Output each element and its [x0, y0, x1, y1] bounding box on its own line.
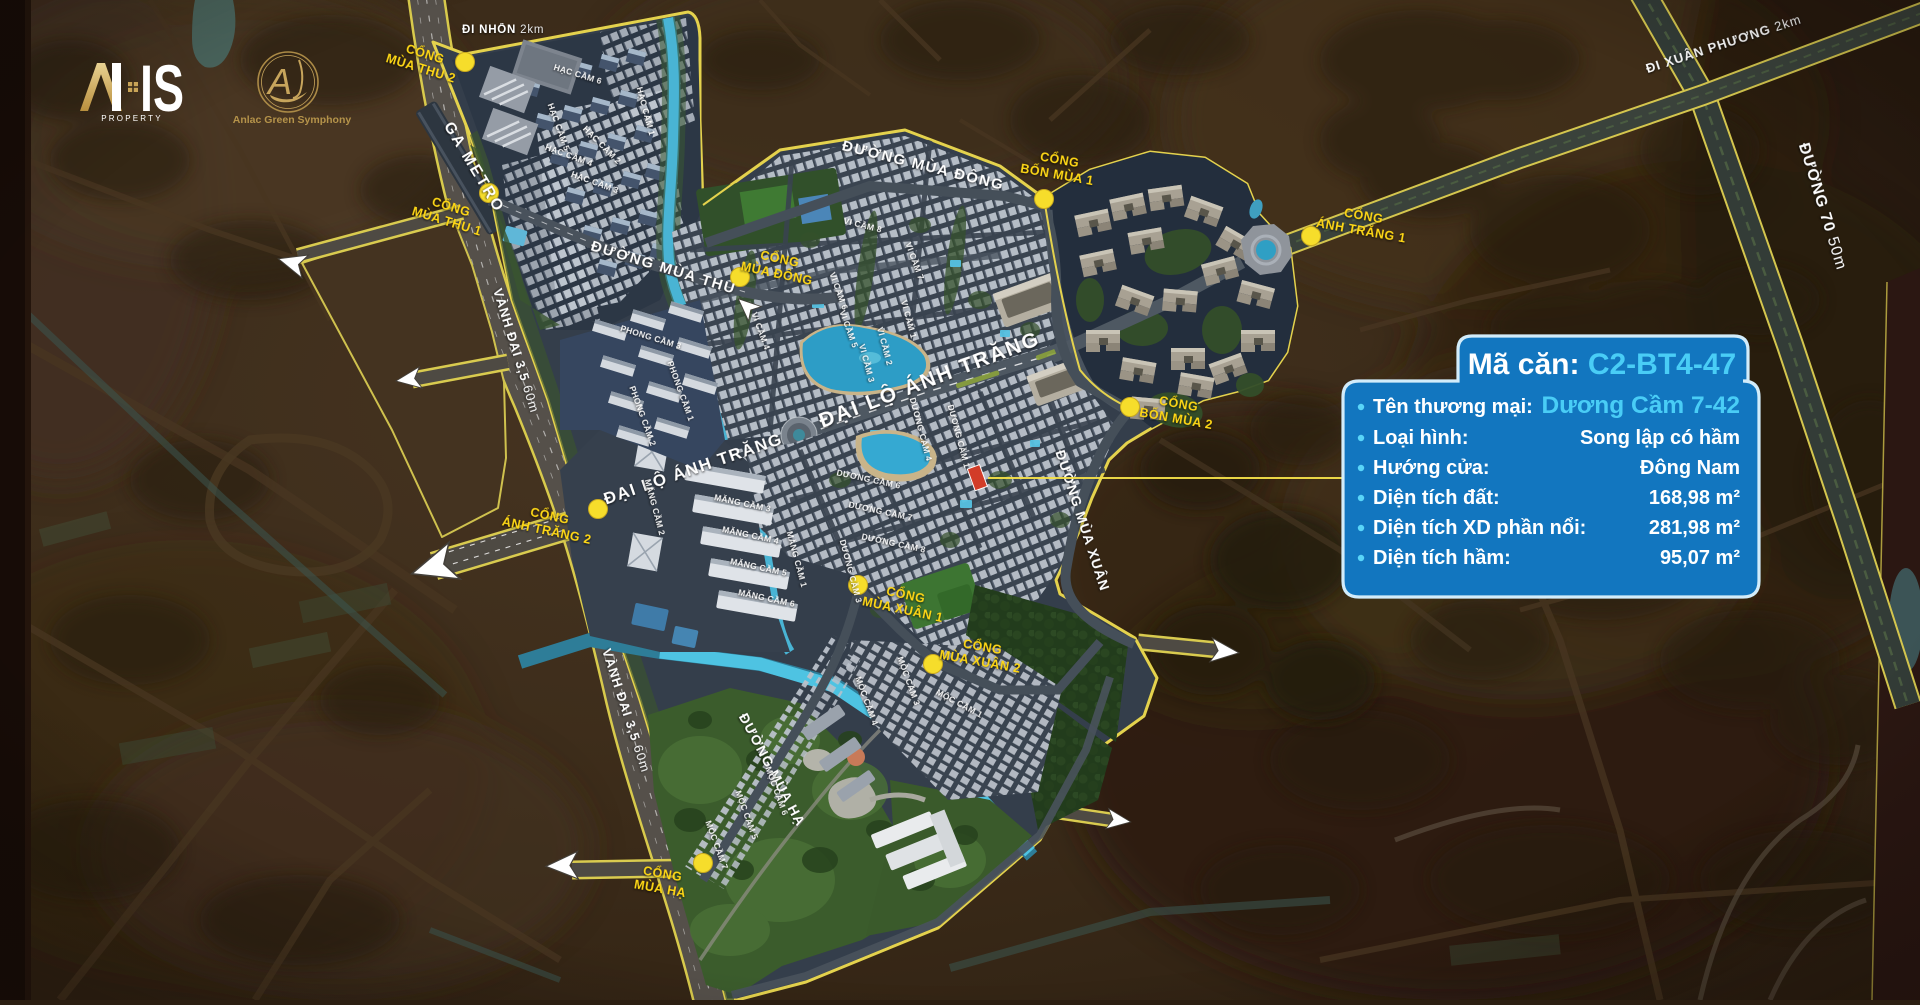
svg-text:Mã căn: C2-BT4-47: Mã căn: C2-BT4-47: [1468, 348, 1736, 381]
svg-text:A: A: [266, 61, 292, 102]
svg-text:Song lập có hầm: Song lập có hầm: [1580, 427, 1740, 449]
svg-text:Diện tích XD phần nổi:: Diện tích XD phần nổi:: [1373, 517, 1586, 539]
svg-text:95,07 m²: 95,07 m²: [1660, 547, 1740, 569]
svg-text:281,98 m²: 281,98 m²: [1649, 517, 1741, 539]
svg-text:Anlac Green Symphony: Anlac Green Symphony: [233, 114, 352, 126]
svg-text:Diện tích đất:: Diện tích đất:: [1373, 487, 1500, 509]
svg-text:PROPERTY: PROPERTY: [101, 114, 162, 123]
svg-text:Hướng cửa:: Hướng cửa:: [1373, 457, 1490, 479]
svg-text:Dương Cầm 7-42: Dương Cầm 7-42: [1541, 392, 1740, 419]
svg-text:Loại hình:: Loại hình:: [1373, 427, 1469, 449]
svg-text:168,98 m²: 168,98 m²: [1649, 487, 1741, 509]
svg-text:Tên thương mại:: Tên thương mại:: [1373, 396, 1533, 418]
svg-text:Đông Nam: Đông Nam: [1640, 457, 1740, 479]
svg-text:Diện tích hầm:: Diện tích hầm:: [1373, 547, 1511, 569]
